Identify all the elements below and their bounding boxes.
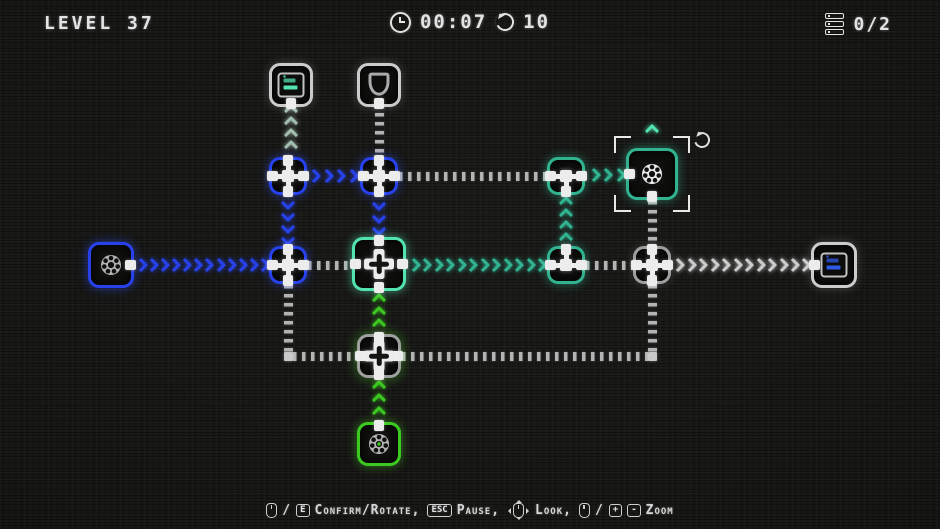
connector-tab-up xyxy=(374,235,384,246)
connector-tab-right xyxy=(125,260,136,270)
connector-tab-down xyxy=(647,191,657,202)
node-connector-1[interactable] xyxy=(269,157,307,195)
controls-hint-bar: /EConfirm/Rotate,ESCPause,Look,/+-Zoom xyxy=(0,502,940,519)
connector-center xyxy=(373,170,385,182)
node-connector-6[interactable] xyxy=(633,246,671,284)
hint-label: Look, xyxy=(535,503,572,518)
hud-timer-group: 00:07 10 xyxy=(0,11,940,33)
flow-segment xyxy=(307,170,359,183)
flow-arrow-up xyxy=(284,140,298,154)
flow-segment xyxy=(407,259,547,272)
keycap: - xyxy=(627,504,640,517)
hint-separator: / xyxy=(282,503,291,518)
hint-separator: / xyxy=(595,503,604,518)
flow-segment xyxy=(586,169,626,182)
flow-arrow-up xyxy=(372,380,386,394)
rotations-icon xyxy=(494,10,517,33)
node-connector-5[interactable] xyxy=(547,246,585,284)
node-sink-shield[interactable] xyxy=(357,63,401,107)
pipe-corner xyxy=(648,352,657,361)
puzzle-stage[interactable] xyxy=(0,0,940,529)
flow-arrow-right xyxy=(599,168,613,182)
flow-segment xyxy=(373,379,386,421)
connector-tab-down xyxy=(374,282,384,293)
flow-segment xyxy=(373,292,386,333)
timer-value: 00:07 xyxy=(420,11,487,33)
connector-tab-down xyxy=(374,98,384,109)
node-connector-3[interactable] xyxy=(547,157,585,195)
node-source-gear-green[interactable] xyxy=(357,422,401,466)
hint-part: /EConfirm/Rotate, xyxy=(266,503,420,518)
connector-center xyxy=(282,170,294,182)
connector-stub xyxy=(286,249,291,259)
connector-center xyxy=(560,170,572,182)
connector-center xyxy=(560,259,572,271)
connector-stub xyxy=(564,249,569,259)
flow-segment xyxy=(135,259,269,272)
flow-segment xyxy=(282,196,295,246)
gear-icon xyxy=(366,431,392,457)
flow-arrow-right xyxy=(344,169,358,183)
selection-direction-arrow xyxy=(645,124,659,138)
connector-stub xyxy=(294,174,304,179)
connector-stub xyxy=(650,249,655,259)
connector-center xyxy=(646,259,658,271)
pipe-segment xyxy=(293,352,357,361)
flow-segment xyxy=(672,259,811,272)
plus-icon xyxy=(364,249,394,279)
game-viewport: LEVEL 37 00:07 10 0/2 /EConfirm/Rotate,E… xyxy=(0,0,940,529)
pipe-segment xyxy=(375,104,384,154)
node-machine-gear-selected[interactable] xyxy=(626,148,678,200)
connector-stub xyxy=(385,174,395,179)
node-sink-teal-server[interactable] xyxy=(269,63,313,107)
flow-arrow-up xyxy=(372,293,386,307)
pipe-segment xyxy=(399,172,547,181)
flow-segment xyxy=(373,196,386,237)
flow-arrow-up xyxy=(372,406,386,420)
connector-stub xyxy=(377,182,382,192)
pipe-segment xyxy=(648,285,657,352)
connector-stub xyxy=(564,182,569,192)
pipe-segment xyxy=(586,261,633,270)
node-mixer-plus[interactable] xyxy=(352,237,406,291)
flow-arrow-down xyxy=(372,197,386,211)
clock-icon xyxy=(390,12,411,33)
connector-tab-left xyxy=(624,169,635,179)
objectives-icon xyxy=(825,13,844,35)
connector-tab-right xyxy=(397,259,408,269)
connector-stub xyxy=(294,263,304,268)
rotate-badge-icon xyxy=(691,129,712,150)
hint-label: Zoom xyxy=(646,503,674,518)
pipe-corner xyxy=(284,352,293,361)
connector-stub xyxy=(572,263,582,268)
progress-value: 0/2 xyxy=(853,14,892,35)
rotations-value: 10 xyxy=(523,11,550,33)
connector-tab-left xyxy=(350,259,361,269)
node-source-gear-blue[interactable] xyxy=(88,242,134,288)
connector-stub xyxy=(272,263,282,268)
pipe-segment xyxy=(402,352,648,361)
connector-stub xyxy=(636,263,646,268)
hint-part: /+-Zoom xyxy=(579,503,674,518)
node-junction-plus[interactable] xyxy=(357,334,401,378)
hud-progress-group: 0/2 xyxy=(825,13,892,35)
plus-icon xyxy=(364,341,394,371)
keycap: ESC xyxy=(427,504,451,517)
flow-segment xyxy=(560,196,573,246)
shield-icon xyxy=(369,73,390,96)
node-sink-blue-server[interactable] xyxy=(811,242,857,288)
connector-stub xyxy=(572,174,582,179)
mouse-icon xyxy=(579,503,590,518)
flow-arrow-up xyxy=(372,393,386,407)
hint-part: ESCPause, xyxy=(427,503,500,518)
connector-tab-up xyxy=(374,420,384,431)
connector-stub xyxy=(550,174,560,179)
server-icon-blue xyxy=(821,253,848,278)
node-connector-2[interactable] xyxy=(360,157,398,195)
gear-icon xyxy=(639,161,665,187)
hint-part: Look, xyxy=(507,502,572,519)
mouse-icon xyxy=(266,503,277,518)
pipe-segment xyxy=(308,261,352,270)
mouse-look-icon xyxy=(507,502,530,519)
keycap: + xyxy=(609,504,622,517)
connector-tab-left xyxy=(809,260,820,270)
gear-icon xyxy=(98,252,124,278)
flow-segment xyxy=(285,104,298,154)
hint-label: Confirm/Rotate, xyxy=(315,503,421,518)
connector-stub xyxy=(658,263,668,268)
connector-center xyxy=(282,259,294,271)
connector-stub xyxy=(550,263,560,268)
keycap: E xyxy=(296,504,309,517)
connector-stub xyxy=(286,160,291,170)
connector-stub xyxy=(377,160,382,170)
connector-stub xyxy=(363,174,373,179)
pipe-segment xyxy=(648,201,657,246)
hint-label: Pause, xyxy=(457,503,500,518)
connector-stub xyxy=(650,271,655,281)
connector-stub xyxy=(272,174,282,179)
flow-arrow-up xyxy=(372,318,386,332)
node-connector-4[interactable] xyxy=(269,246,307,284)
connector-tab-down xyxy=(286,98,296,109)
pipe-segment xyxy=(284,285,293,353)
server-icon-teal xyxy=(278,73,305,98)
connector-stub xyxy=(286,271,291,281)
connector-stub xyxy=(286,182,291,192)
